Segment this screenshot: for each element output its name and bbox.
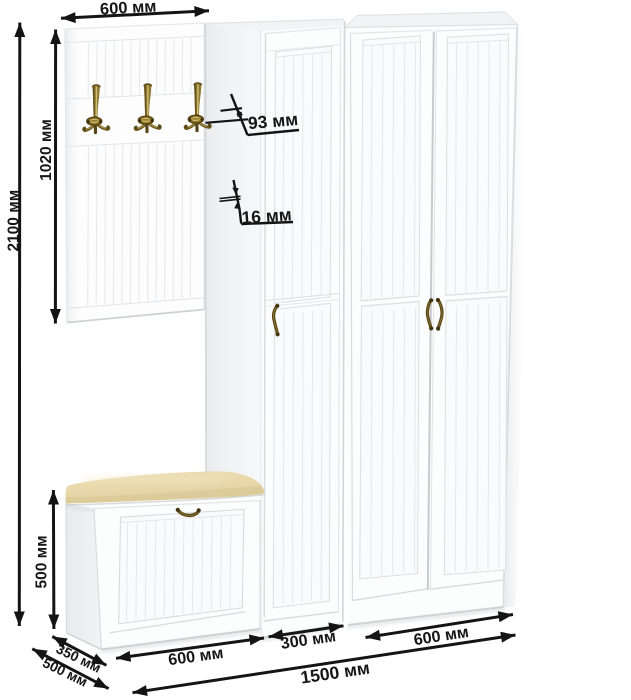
svg-text:600 мм: 600 мм	[99, 0, 156, 19]
svg-text:500 мм: 500 мм	[33, 535, 50, 588]
svg-text:16 мм: 16 мм	[241, 204, 292, 227]
svg-text:1020 мм: 1020 мм	[38, 119, 55, 181]
svg-text:2100 мм: 2100 мм	[5, 190, 22, 252]
